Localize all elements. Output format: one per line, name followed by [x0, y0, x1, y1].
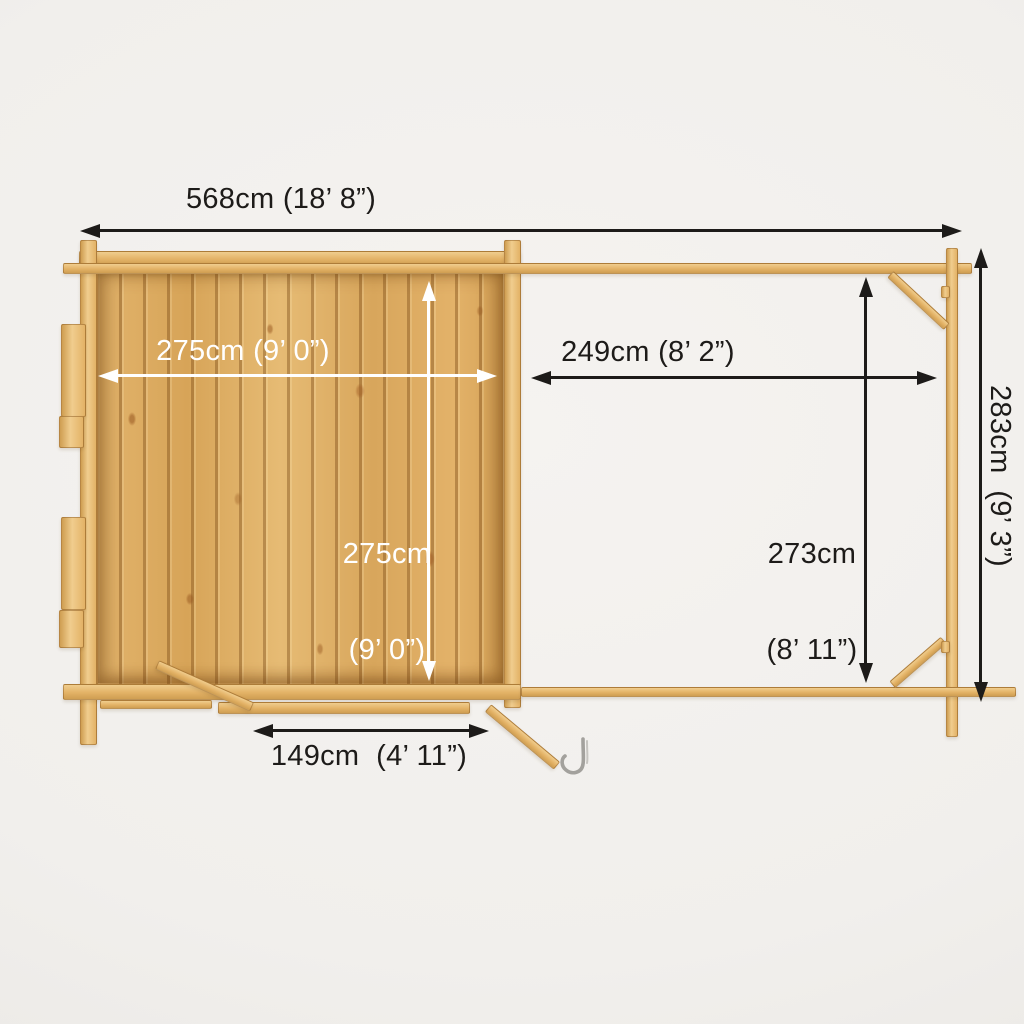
- arrowhead-right-icon: [942, 224, 962, 238]
- dim-cabin-internal-width-label: 275cm (9’ 0”): [156, 335, 330, 367]
- dim-pergola-depth-line2: (8’ 11”): [766, 634, 857, 666]
- dim-door-opening-label: 149cm (4’ 11”): [271, 740, 467, 772]
- pergola-post-tab-top: [941, 286, 950, 298]
- cabin-wall-left: [80, 240, 97, 745]
- dim-cabin-internal-depth-line1: 275cm: [343, 538, 432, 570]
- window-lower-sill: [59, 610, 84, 648]
- pergola-post-tab-bottom: [941, 641, 950, 653]
- dim-pergola-depth-label: 273cm (8’ 11”): [766, 474, 857, 730]
- arrowhead-right-icon: [469, 724, 489, 738]
- arrowhead-left-icon: [253, 724, 273, 738]
- front-fascia-beam: [63, 263, 972, 274]
- arrowhead-left-icon: [98, 369, 118, 383]
- cabin-floor: [97, 266, 504, 684]
- arrowhead-down-icon: [859, 663, 873, 683]
- dim-cabin-internal-depth-label: 275cm (9’ 0”): [343, 474, 432, 730]
- dim-overall-depth-label: 283cm (9’ 3”): [984, 385, 1016, 567]
- cabin-wall-bottom: [63, 684, 521, 700]
- arrowhead-right-icon: [917, 371, 937, 385]
- door-right-leaf: [485, 704, 560, 770]
- dim-pergola-depth-line: [864, 291, 867, 669]
- window-upper-sill: [59, 416, 84, 448]
- arrowhead-up-icon: [859, 277, 873, 297]
- pergola-brace-bottom: [889, 637, 946, 688]
- dim-cabin-internal-depth-line: [427, 296, 430, 666]
- dim-pergola-depth-line1: 273cm: [766, 538, 857, 570]
- arrowhead-up-icon: [974, 248, 988, 268]
- door-sill: [100, 700, 212, 709]
- arrowhead-down-icon: [422, 661, 436, 681]
- pergola-brace-top: [887, 271, 949, 330]
- arrowhead-left-icon: [80, 224, 100, 238]
- window-lower-frame: [61, 517, 86, 610]
- arrowhead-up-icon: [422, 281, 436, 301]
- arrowhead-right-icon: [477, 369, 497, 383]
- dim-overall-depth-line: [979, 262, 982, 688]
- door-hook-icon: [556, 737, 598, 781]
- dim-overall-width-label: 568cm (18’ 8”): [186, 183, 376, 215]
- plan-diagram: 568cm (18’ 8”) 283cm (9’ 3”) 275cm (9’ 0…: [0, 0, 1024, 1024]
- window-upper-frame: [61, 324, 86, 417]
- dim-pergola-width-label: 249cm (8’ 2”): [561, 336, 735, 368]
- cabin-wall-right: [504, 240, 521, 708]
- arrowhead-down-icon: [974, 682, 988, 702]
- dim-overall-width-line: [96, 229, 942, 232]
- arrowhead-left-icon: [531, 371, 551, 385]
- dim-door-opening-line: [267, 729, 475, 732]
- dim-cabin-internal-depth-line2: (9’ 0”): [343, 634, 432, 666]
